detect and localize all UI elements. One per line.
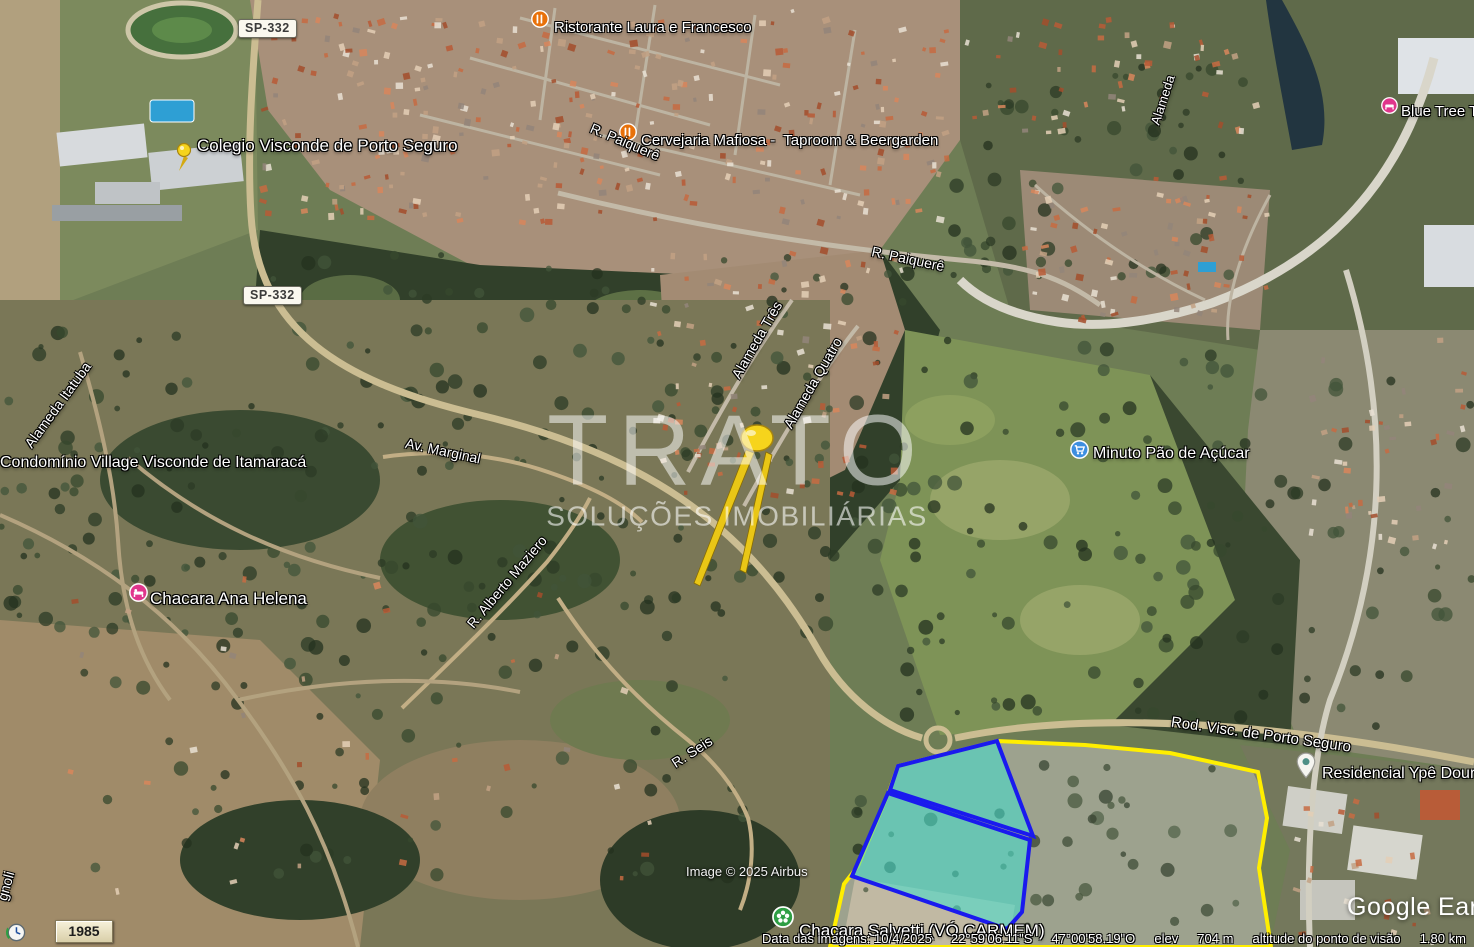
poi-label-condominio[interactable]: Condomínio Village Visconde de Itamaracá [0, 455, 306, 472]
poi-label-colegio[interactable]: Colegio Visconde de Porto Seguro [197, 137, 458, 155]
park-flower-icon[interactable] [772, 906, 794, 928]
place-pin-icon[interactable] [1294, 752, 1318, 780]
restaurant-icon[interactable] [531, 10, 549, 28]
poi-label-ristorante[interactable]: Ristorante Laura e Francesco [554, 20, 752, 36]
poi-label-cervejaria[interactable]: Cervejaria Mafiosa - Taproom & Beergarde… [641, 133, 938, 149]
google-earth-logo: Google Earth [1347, 893, 1474, 922]
poi-label-blue-tree[interactable]: Blue Tree Tow [1401, 104, 1474, 120]
imagery-year-box[interactable]: 1985 [55, 920, 113, 943]
lodging-icon[interactable] [129, 583, 148, 602]
route-shield-sp332-mid: SP-332 [243, 286, 302, 305]
property-overlay[interactable] [830, 741, 1271, 947]
satellite-map-viewport[interactable]: TRATO SOLUÇÕES IMOBILIÁRIAS SP-332 SP-33… [0, 0, 1474, 947]
swimming-pool [150, 100, 194, 122]
view-altitude-readout: 1.80 km [1420, 931, 1466, 946]
latitude-readout: 22°59'06.11"S [951, 931, 1032, 946]
view-altitude-label: altitude do ponto de visão [1252, 931, 1400, 946]
poi-label-minuto[interactable]: Minuto Pão de Açúcar [1093, 446, 1250, 463]
status-bar: Data das imagens: 10/4/2025 22°59'06.11"… [762, 931, 1466, 946]
route-shield-sp332-top: SP-332 [238, 19, 297, 38]
history-clock-icon[interactable] [4, 921, 27, 944]
elevation-readout: 704 m [1197, 931, 1233, 946]
poi-label-residencial[interactable]: Residencial Ypê Doura [1322, 766, 1474, 783]
poi-label-chacara-ana[interactable]: Chacara Ana Helena [150, 590, 307, 608]
longitude-readout: 47°00'58.19"O [1051, 931, 1135, 946]
supermarket-icon[interactable] [1070, 440, 1089, 459]
imagery-copyright: Image © 2025 Airbus [686, 864, 808, 879]
imagery-date: Data das imagens: 10/4/2025 [762, 931, 932, 946]
lodging-icon[interactable] [1381, 97, 1398, 114]
elev-label: elev [1154, 931, 1178, 946]
